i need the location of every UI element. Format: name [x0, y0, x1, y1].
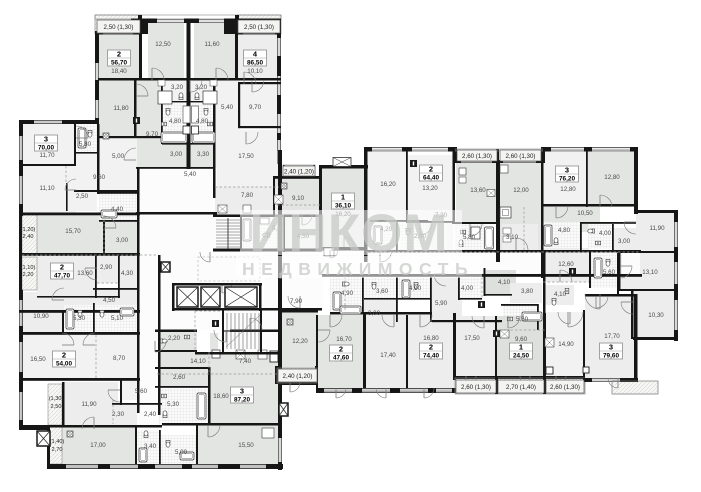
svg-text:(1,20): (1,20): [21, 227, 36, 233]
svg-text:10,50: 10,50: [577, 210, 593, 217]
svg-text:9,10: 9,10: [292, 195, 305, 202]
svg-text:2: 2: [429, 165, 433, 174]
svg-text:10,90: 10,90: [33, 313, 49, 320]
svg-text:1: 1: [341, 193, 345, 202]
svg-text:12,80: 12,80: [604, 174, 620, 181]
svg-text:12,50: 12,50: [155, 41, 171, 48]
svg-text:5,00: 5,00: [175, 449, 188, 456]
svg-text:3,10: 3,10: [506, 234, 519, 241]
svg-text:4,10: 4,10: [498, 279, 511, 286]
svg-text:47,70: 47,70: [54, 273, 70, 280]
svg-text:5,80: 5,80: [79, 141, 92, 148]
svg-text:4,00: 4,00: [461, 285, 474, 292]
svg-text:3,60: 3,60: [376, 288, 389, 295]
svg-text:5,30: 5,30: [73, 315, 86, 322]
svg-text:2: 2: [429, 343, 433, 352]
svg-text:4,00: 4,00: [599, 230, 612, 237]
svg-text:2,20: 2,20: [23, 272, 34, 278]
svg-text:87,20: 87,20: [234, 397, 250, 404]
svg-text:3,00: 3,00: [116, 237, 129, 244]
svg-text:3,30: 3,30: [197, 151, 210, 158]
svg-text:3,00: 3,00: [368, 310, 381, 317]
svg-text:2,40: 2,40: [23, 234, 34, 240]
svg-text:2,50: 2,50: [76, 193, 89, 200]
svg-text:2,20: 2,20: [168, 335, 181, 342]
svg-text:12,20: 12,20: [292, 338, 308, 345]
svg-text:7,40: 7,40: [239, 358, 252, 365]
svg-text:7,90: 7,90: [290, 298, 303, 305]
svg-text:4,50: 4,50: [103, 297, 116, 304]
svg-text:(1,10): (1,10): [21, 265, 36, 271]
svg-text:(1,40): (1,40): [50, 439, 65, 445]
svg-text:2,40 (1,20): 2,40 (1,20): [283, 373, 313, 380]
svg-text:79,60: 79,60: [603, 353, 619, 360]
svg-text:11,90: 11,90: [649, 225, 665, 232]
svg-text:3: 3: [609, 343, 613, 352]
svg-text:12,80: 12,80: [560, 186, 576, 193]
svg-text:9,60: 9,60: [93, 174, 106, 181]
svg-text:74,40: 74,40: [423, 353, 439, 360]
svg-text:17,50: 17,50: [464, 335, 480, 342]
svg-text:14,10: 14,10: [190, 358, 206, 365]
svg-text:2,90: 2,90: [100, 264, 113, 271]
svg-text:4,90: 4,90: [409, 285, 422, 292]
svg-text:5,80: 5,80: [463, 234, 476, 241]
svg-text:3,80: 3,80: [521, 288, 534, 295]
svg-text:2: 2: [117, 50, 121, 59]
svg-text:2,70 (1,40): 2,70 (1,40): [506, 384, 536, 391]
svg-text:2,70: 2,70: [52, 447, 63, 453]
svg-text:2,60 (1,30): 2,60 (1,30): [550, 384, 580, 391]
svg-text:47,60: 47,60: [333, 355, 349, 362]
svg-text:5,60: 5,60: [516, 316, 529, 323]
svg-text:11,60: 11,60: [204, 41, 220, 48]
svg-text:3: 3: [44, 135, 48, 144]
svg-text:5,40: 5,40: [221, 104, 234, 111]
svg-text:76,20: 76,20: [559, 176, 575, 183]
svg-text:24,50: 24,50: [513, 353, 529, 360]
svg-text:4,40: 4,40: [111, 206, 124, 213]
svg-text:11,10: 11,10: [39, 185, 55, 192]
svg-text:2: 2: [339, 345, 343, 354]
svg-text:12,00: 12,00: [513, 187, 529, 194]
svg-text:3,00: 3,00: [170, 151, 183, 158]
svg-text:64,40: 64,40: [423, 175, 439, 182]
svg-text:2: 2: [62, 351, 66, 360]
svg-text:2,60 (1,30): 2,60 (1,30): [461, 384, 491, 391]
svg-text:13,20: 13,20: [422, 185, 438, 192]
svg-text:3,40: 3,40: [144, 443, 157, 450]
svg-text:2,50 (1,30): 2,50 (1,30): [104, 24, 134, 31]
svg-text:9,70: 9,70: [249, 104, 262, 111]
svg-text:10,10: 10,10: [247, 68, 263, 75]
svg-text:10,30: 10,30: [648, 312, 664, 319]
svg-text:4,80: 4,80: [169, 118, 182, 125]
svg-text:2,50: 2,50: [51, 404, 62, 410]
svg-text:3,00: 3,00: [618, 238, 631, 245]
svg-text:2,60 (1,30): 2,60 (1,30): [506, 153, 536, 160]
svg-text:70,00: 70,00: [38, 145, 54, 152]
svg-text:4,30: 4,30: [121, 270, 134, 277]
svg-text:5,60: 5,60: [135, 388, 148, 395]
svg-text:2,30: 2,30: [112, 411, 125, 418]
svg-text:2,60: 2,60: [173, 374, 186, 381]
svg-text:54,00: 54,00: [56, 361, 72, 368]
svg-text:13,60: 13,60: [470, 187, 486, 194]
svg-text:7,80: 7,80: [241, 192, 254, 199]
svg-text:13,60: 13,60: [77, 270, 93, 277]
svg-text:15,70: 15,70: [65, 228, 81, 235]
svg-text:8,70: 8,70: [113, 355, 126, 362]
svg-text:5,60: 5,60: [603, 269, 616, 276]
svg-text:2: 2: [60, 263, 64, 272]
svg-text:17,40: 17,40: [380, 352, 396, 359]
svg-text:5,30: 5,30: [167, 401, 180, 408]
svg-text:16,50: 16,50: [30, 356, 46, 363]
svg-text:5,40: 5,40: [184, 171, 197, 178]
svg-text:15,50: 15,50: [238, 442, 254, 449]
svg-text:4,80: 4,80: [196, 118, 209, 125]
svg-text:17,50: 17,50: [238, 153, 254, 160]
svg-text:3,20: 3,20: [171, 84, 184, 91]
svg-text:ИНКОМ: ИНКОМ: [249, 204, 448, 263]
svg-text:11,90: 11,90: [81, 401, 97, 408]
svg-text:18,60: 18,60: [213, 393, 229, 400]
svg-text:5,10: 5,10: [111, 315, 124, 322]
svg-text:56,70: 56,70: [111, 60, 127, 67]
svg-text:(1,30): (1,30): [49, 396, 64, 402]
svg-text:3,20: 3,20: [195, 84, 208, 91]
svg-text:16,80: 16,80: [423, 335, 439, 342]
svg-text:17,70: 17,70: [604, 333, 620, 340]
svg-text:13,10: 13,10: [642, 269, 658, 276]
svg-text:5,00: 5,00: [112, 153, 125, 160]
svg-text:1: 1: [519, 343, 523, 352]
svg-text:2,40: 2,40: [144, 411, 157, 418]
svg-text:16,20: 16,20: [380, 181, 396, 188]
svg-text:18,40: 18,40: [111, 68, 127, 75]
svg-text:2,50 (1,30): 2,50 (1,30): [244, 24, 274, 31]
svg-text:11,80: 11,80: [113, 105, 129, 112]
svg-text:2,60 (1,30): 2,60 (1,30): [462, 153, 492, 160]
svg-text:17,00: 17,00: [90, 442, 106, 449]
svg-text:16,70: 16,70: [336, 336, 352, 343]
svg-text:9,70: 9,70: [146, 131, 159, 138]
svg-text:4,80: 4,80: [558, 227, 571, 234]
svg-text:3: 3: [565, 166, 569, 175]
svg-text:5,90: 5,90: [435, 300, 448, 307]
svg-text:4,10: 4,10: [554, 291, 567, 298]
svg-text:86,50: 86,50: [247, 60, 263, 67]
svg-text:НЕДВИЖИМОСТЬ: НЕДВИЖИМОСТЬ: [242, 259, 474, 279]
svg-text:3: 3: [240, 387, 244, 396]
svg-text:14,90: 14,90: [558, 341, 574, 348]
svg-text:12,60: 12,60: [558, 261, 574, 268]
svg-text:2,40 (1,20): 2,40 (1,20): [284, 168, 314, 175]
svg-text:4,90: 4,90: [341, 290, 354, 297]
svg-text:11,70: 11,70: [39, 152, 55, 159]
